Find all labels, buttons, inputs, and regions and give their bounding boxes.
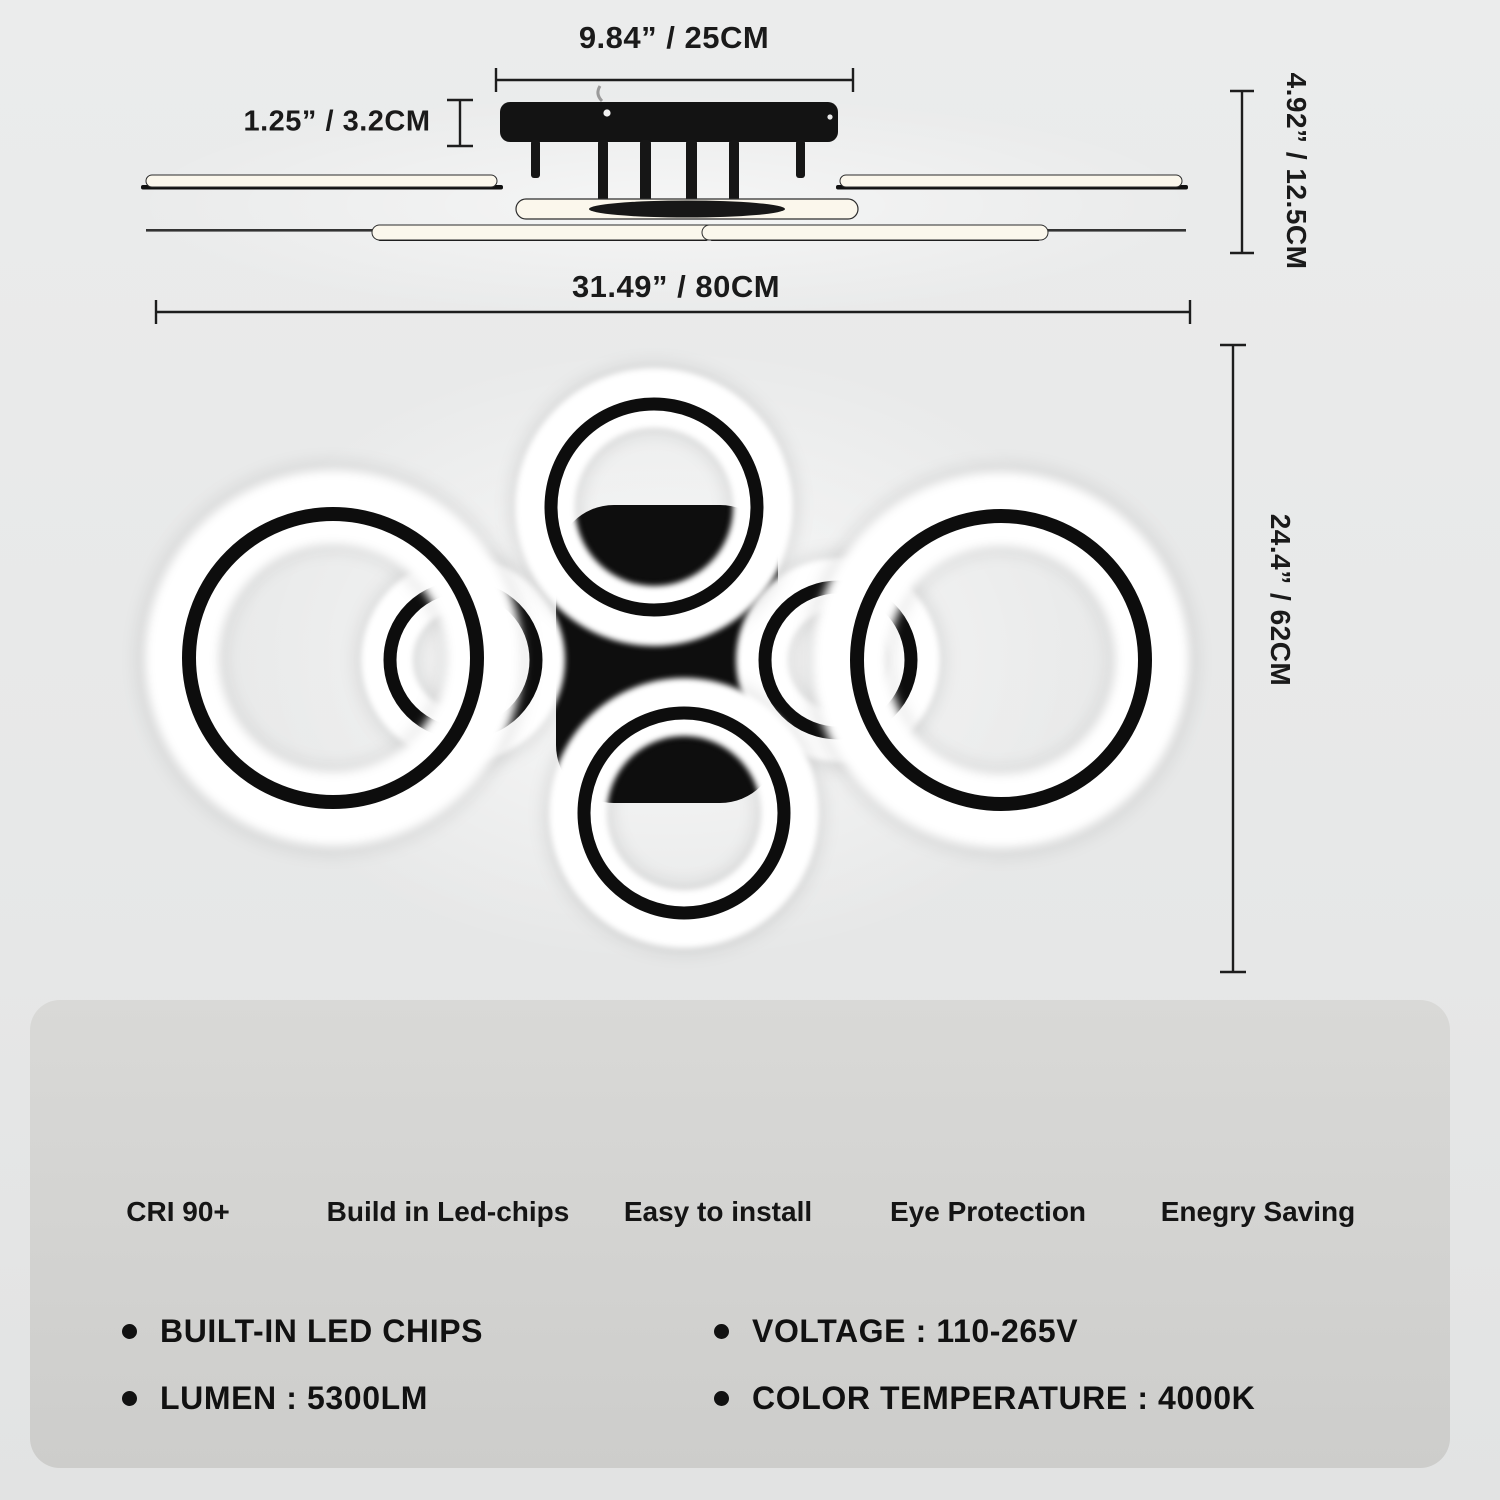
bullet-icon	[122, 1391, 137, 1406]
side-rings-upper	[141, 175, 1188, 190]
screw	[603, 109, 610, 116]
lamp-top-view	[181, 398, 1153, 919]
spec-text: COLOR TEMPERATURE : 4000K	[752, 1380, 1255, 1417]
spec-item: BUILT-IN LED CHIPS	[122, 1313, 483, 1350]
cri-icon-slot	[108, 1068, 248, 1170]
cable	[598, 86, 602, 101]
fixture-width-label: 31.49” / 80CM	[572, 269, 780, 305]
support-rods	[531, 140, 805, 208]
chip-icon-slot	[378, 1068, 518, 1170]
feature-eye-protection: Eye Protection	[848, 1068, 1128, 1228]
tools-icon-slot	[648, 1068, 788, 1170]
feature-label: Build in Led-chips	[327, 1196, 570, 1228]
spec-text: VOLTAGE : 110-265V	[752, 1313, 1078, 1350]
feature-energy-saving: Enegry Saving	[1118, 1068, 1398, 1228]
product-diagram-page: 9.84” / 25CM 1.25” / 3.2CM 4.92” / 12.5C…	[0, 0, 1500, 1500]
spec-item: VOLTAGE : 110-265V	[714, 1313, 1078, 1350]
canopy-width-label: 9.84” / 25CM	[579, 20, 769, 56]
spec-text: LUMEN : 5300LM	[160, 1380, 428, 1417]
fixture-depth-dim-line	[1220, 345, 1246, 972]
canopy-height-dim-line	[447, 100, 473, 146]
feature-label: Eye Protection	[890, 1196, 1086, 1228]
spec-item: LUMEN : 5300LM	[122, 1380, 428, 1417]
canopy-height-label: 1.25” / 3.2CM	[243, 106, 430, 139]
feature-label: CRI 90+	[126, 1196, 230, 1228]
spec-item: COLOR TEMPERATURE : 4000K	[714, 1380, 1255, 1417]
feature-label: Enegry Saving	[1161, 1196, 1356, 1228]
feature-led-chips: Build in Led-chips	[308, 1068, 588, 1228]
fixture-height-dim-line	[1230, 91, 1254, 253]
feature-label: Easy to install	[624, 1196, 812, 1228]
canopy-width-dim-line	[496, 68, 853, 92]
fixture-depth-label: 24.4” / 62CM	[1264, 514, 1296, 687]
side-ring-middle	[516, 199, 858, 219]
feature-easy-install: Easy to install	[578, 1068, 858, 1228]
bullet-icon	[714, 1391, 729, 1406]
screw	[827, 114, 832, 119]
side-rings-lower	[146, 225, 1186, 241]
ring-large-left	[181, 506, 485, 810]
bullet-icon	[714, 1324, 729, 1339]
spec-text: BUILT-IN LED CHIPS	[160, 1313, 483, 1350]
eye-icon-slot	[918, 1068, 1058, 1170]
leaf-icon-slot	[1188, 1068, 1328, 1170]
feature-cri: CRI 90+	[38, 1068, 318, 1228]
bullet-icon	[122, 1324, 137, 1339]
ring-bottom	[578, 707, 790, 919]
fixture-height-label: 4.92” / 12.5CM	[1280, 73, 1312, 270]
ceiling-canopy	[500, 102, 838, 142]
